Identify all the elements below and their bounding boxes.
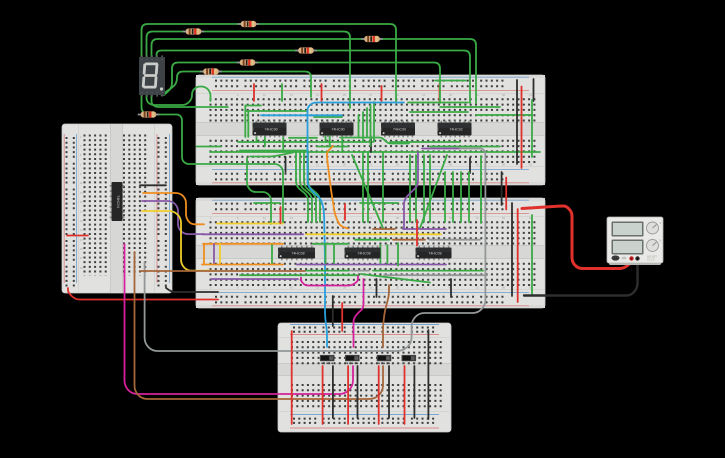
svg-text:74HC90: 74HC90	[264, 128, 277, 132]
svg-text:V: V	[660, 221, 662, 225]
svg-text:74HC08: 74HC08	[291, 252, 304, 256]
svg-text:74HC92: 74HC92	[449, 128, 462, 132]
svg-text:74HC90: 74HC90	[331, 128, 344, 132]
svg-text:74HC90: 74HC90	[393, 128, 406, 132]
svg-text:74HC08: 74HC08	[357, 252, 370, 256]
svg-text:74HC04: 74HC04	[116, 195, 120, 208]
svg-text:CC CV: CC CV	[647, 259, 655, 262]
svg-text:74HC08: 74HC08	[428, 252, 441, 256]
svg-text:V: V	[660, 239, 662, 243]
